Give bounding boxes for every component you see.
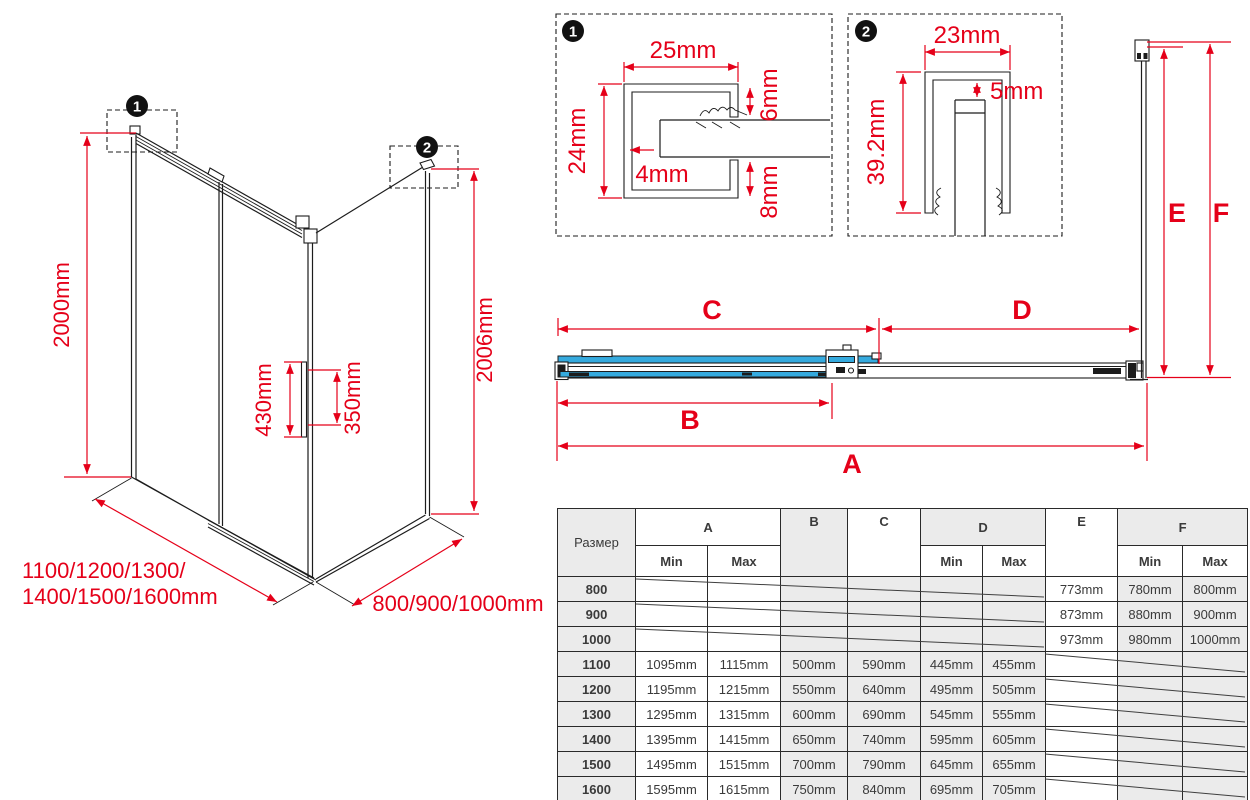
cell-c: 690mm: [848, 702, 921, 727]
marker-2-label: 2: [423, 140, 431, 157]
cell-e: [1046, 777, 1118, 800]
cell-d-max: 705mm: [983, 777, 1046, 800]
f-max-header: Max: [1183, 546, 1248, 577]
cell-d-max: [983, 577, 1046, 602]
detail-view-2: 2 23mm 5mm 39.2mm: [848, 14, 1062, 236]
cell-a-max: 1115mm: [708, 652, 781, 677]
dim-d-label: D: [1012, 295, 1032, 325]
table-row: 1400 1395mm 1415mm 650mm 740mm 595mm 605…: [558, 727, 1248, 752]
dim-2006mm-label: 2006mm: [472, 297, 497, 383]
row-size: 1000: [558, 627, 636, 652]
dim-25mm-label: 25mm: [650, 37, 717, 64]
dim-2000mm-label: 2000mm: [49, 262, 74, 348]
cell-f-max: [1183, 777, 1248, 800]
cell-f-min: [1118, 752, 1183, 777]
cell-c: [848, 602, 921, 627]
cell-b: 650mm: [781, 727, 848, 752]
cell-a-max: [708, 602, 781, 627]
col-header-f: F: [1118, 509, 1248, 546]
side-width-label: 800/900/1000mm: [372, 591, 543, 616]
table-row: 900 873mm 880mm 900mm: [558, 602, 1248, 627]
table-row: 1000 973mm 980mm 1000mm: [558, 627, 1248, 652]
cell-f-min: [1118, 677, 1183, 702]
cell-d-min: 695mm: [921, 777, 983, 800]
cell-b: 500mm: [781, 652, 848, 677]
cell-c: 840mm: [848, 777, 921, 800]
col-header-c: C: [848, 509, 921, 577]
cell-e: [1046, 677, 1118, 702]
cell-f-min: 980mm: [1118, 627, 1183, 652]
dim-f-label: F: [1213, 198, 1230, 228]
cell-c: 640mm: [848, 677, 921, 702]
a-min-header: Min: [636, 546, 708, 577]
cell-a-max: 1415mm: [708, 727, 781, 752]
cell-d-min: 445mm: [921, 652, 983, 677]
cell-e: 873mm: [1046, 602, 1118, 627]
cell-a-min: 1595mm: [636, 777, 708, 800]
dim-23mm-label: 23mm: [934, 22, 1001, 49]
cell-f-min: [1118, 652, 1183, 677]
technical-drawing-page: 1 2 2000mm 430mm 350mm 2006mm 1100/1200/…: [0, 0, 1250, 800]
door-guide-bracket: [826, 350, 858, 378]
dim-350mm-label: 350mm: [340, 361, 365, 434]
row-size: 1500: [558, 752, 636, 777]
dim-39-2mm-label: 39.2mm: [863, 99, 890, 186]
detail1-callout-box: [107, 110, 177, 152]
cell-d-max: 605mm: [983, 727, 1046, 752]
marker-1-label: 1: [133, 99, 141, 116]
dim-6mm-label: 6mm: [756, 68, 783, 121]
cell-b: 700mm: [781, 752, 848, 777]
cell-f-min: [1118, 777, 1183, 800]
cell-a-max: [708, 577, 781, 602]
detail-view-1: 1 25mm 24mm 6mm 8mm 4mm: [556, 14, 832, 236]
dim-8mm-label: 8mm: [756, 165, 783, 218]
cell-d-min: 545mm: [921, 702, 983, 727]
cell-b: [781, 602, 848, 627]
cell-a-max: 1515mm: [708, 752, 781, 777]
cell-e: [1046, 752, 1118, 777]
f-min-header: Min: [1118, 546, 1183, 577]
cell-d-min: 595mm: [921, 727, 983, 752]
table-row: 1200 1195mm 1215mm 550mm 640mm 495mm 505…: [558, 677, 1248, 702]
roller-bracket: [208, 168, 224, 182]
cell-d-min: [921, 577, 983, 602]
cell-f-max: 800mm: [1183, 577, 1248, 602]
wall-profile-bracket: [420, 160, 435, 170]
cell-c: 790mm: [848, 752, 921, 777]
detail-2-number: 2: [862, 24, 870, 41]
cell-d-max: 455mm: [983, 652, 1046, 677]
d-max-header: Max: [983, 546, 1046, 577]
cell-a-min: 1195mm: [636, 677, 708, 702]
cell-d-max: [983, 602, 1046, 627]
detail-1-number: 1: [569, 24, 577, 41]
cell-f-max: [1183, 727, 1248, 752]
table-row: 1300 1295mm 1315mm 600mm 690mm 545mm 555…: [558, 702, 1248, 727]
cell-e: [1046, 727, 1118, 752]
row-size: 900: [558, 602, 636, 627]
cell-a-min: [636, 602, 708, 627]
cell-b: 550mm: [781, 677, 848, 702]
col-header-a: A: [636, 509, 781, 546]
cell-d-max: 505mm: [983, 677, 1046, 702]
d-min-header: Min: [921, 546, 983, 577]
cell-f-max: [1183, 652, 1248, 677]
cell-b: [781, 577, 848, 602]
col-header-b: B: [781, 509, 848, 577]
cell-f-max: 900mm: [1183, 602, 1248, 627]
row-size: 1300: [558, 702, 636, 727]
size-table: Размер A B C D E F Min Max Min Max Min M…: [557, 508, 1248, 800]
cell-f-max: [1183, 752, 1248, 777]
cell-a-min: [636, 627, 708, 652]
dim-a-label: A: [842, 449, 862, 479]
plan-view: C D B A E F: [555, 40, 1231, 479]
dimension-table: Размер A B C D E F Min Max Min Max Min M…: [557, 508, 1248, 800]
cell-a-max: [708, 627, 781, 652]
row-size: 1100: [558, 652, 636, 677]
cell-c: 740mm: [848, 727, 921, 752]
col-header-d: D: [921, 509, 1046, 546]
size-column-header: Размер: [558, 509, 636, 577]
cell-f-max: [1183, 677, 1248, 702]
cell-e: [1046, 702, 1118, 727]
cell-e: 773mm: [1046, 577, 1118, 602]
cell-e: [1046, 652, 1118, 677]
cell-a-min: 1395mm: [636, 727, 708, 752]
cell-d-min: [921, 627, 983, 652]
dim-4mm-label: 4mm: [635, 161, 688, 188]
a-max-header: Max: [708, 546, 781, 577]
cell-b: 600mm: [781, 702, 848, 727]
cell-a-max: 1315mm: [708, 702, 781, 727]
table-row: 1600 1595mm 1615mm 750mm 840mm 695mm 705…: [558, 777, 1248, 800]
cell-f-min: [1118, 727, 1183, 752]
cell-e: 973mm: [1046, 627, 1118, 652]
cell-d-max: 555mm: [983, 702, 1046, 727]
cell-d-min: 645mm: [921, 752, 983, 777]
front-width-label-line2: 1400/1500/1600mm: [22, 584, 218, 609]
table-row: 800 773mm 780mm 800mm: [558, 577, 1248, 602]
corner-bracket: [304, 229, 317, 243]
front-width-label-line1: 1100/1200/1300/: [22, 558, 186, 583]
row-size: 1200: [558, 677, 636, 702]
cell-c: [848, 577, 921, 602]
cell-f-min: 780mm: [1118, 577, 1183, 602]
cell-d-max: 655mm: [983, 752, 1046, 777]
cell-d-min: 495mm: [921, 677, 983, 702]
table-row: 1500 1495mm 1515mm 700mm 790mm 645mm 655…: [558, 752, 1248, 777]
cell-a-min: [636, 577, 708, 602]
cell-f-min: [1118, 702, 1183, 727]
dim-b-label: B: [680, 405, 700, 435]
cell-a-min: 1495mm: [636, 752, 708, 777]
dim-24mm-label: 24mm: [564, 108, 591, 175]
cell-a-min: 1295mm: [636, 702, 708, 727]
dim-e-label: E: [1168, 198, 1186, 228]
dim-5mm-label: 5mm: [990, 78, 1043, 105]
row-size: 800: [558, 577, 636, 602]
door-handle: [302, 362, 307, 437]
cell-a-max: 1215mm: [708, 677, 781, 702]
cell-c: [848, 627, 921, 652]
cell-f-min: 880mm: [1118, 602, 1183, 627]
cell-d-min: [921, 602, 983, 627]
dim-430mm-label: 430mm: [251, 363, 276, 436]
row-size: 1600: [558, 777, 636, 800]
cell-f-max: [1183, 702, 1248, 727]
cell-b: 750mm: [781, 777, 848, 800]
cell-b: [781, 627, 848, 652]
table-row: 1100 1095mm 1115mm 500mm 590mm 445mm 455…: [558, 652, 1248, 677]
col-header-e: E: [1046, 509, 1118, 577]
isometric-view: 1 2 2000mm 430mm 350mm 2006mm 1100/1200/…: [22, 95, 544, 616]
dim-c-label: C: [702, 295, 722, 325]
cell-c: 590mm: [848, 652, 921, 677]
row-size: 1400: [558, 727, 636, 752]
roller-bracket: [296, 216, 309, 228]
fixed-glass-plan: [560, 372, 830, 378]
cell-a-min: 1095mm: [636, 652, 708, 677]
cell-f-max: 1000mm: [1183, 627, 1248, 652]
cell-a-max: 1615mm: [708, 777, 781, 800]
cell-d-max: [983, 627, 1046, 652]
